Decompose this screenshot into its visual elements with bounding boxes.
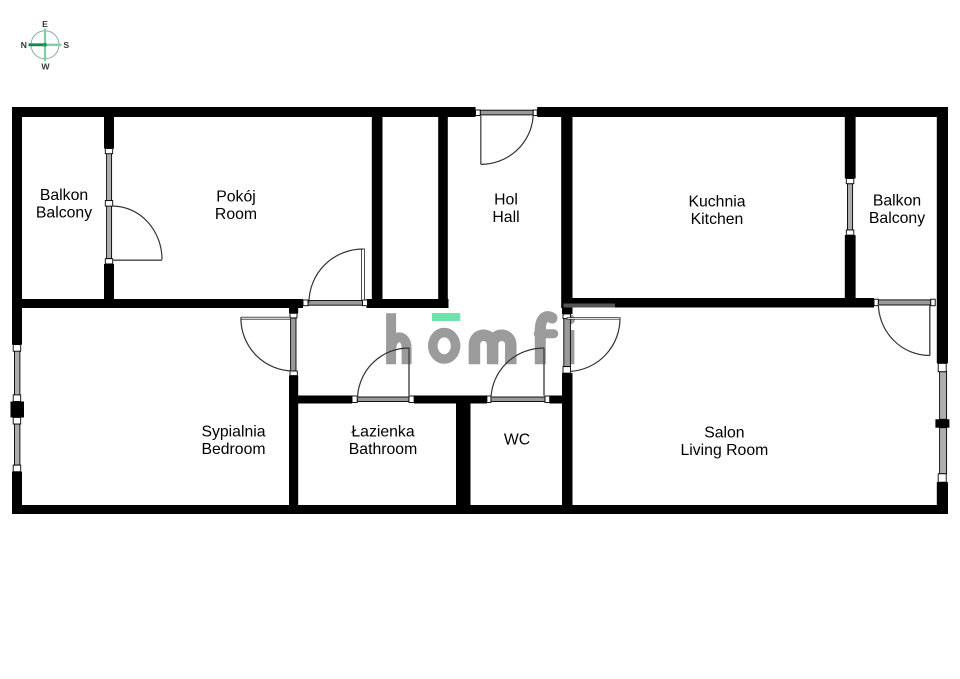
svg-text:Room: Room xyxy=(215,206,257,223)
svg-text:Bathroom: Bathroom xyxy=(349,441,418,458)
svg-text:Balkon: Balkon xyxy=(873,193,921,210)
svg-text:Balkon: Balkon xyxy=(40,187,88,204)
svg-text:S: S xyxy=(63,40,69,50)
svg-text:Salon: Salon xyxy=(704,425,744,442)
svg-text:Pokój: Pokój xyxy=(216,189,256,206)
svg-text:Living Room: Living Room xyxy=(680,442,768,459)
svg-text:Hall: Hall xyxy=(492,209,519,226)
svg-text:Sypialnia: Sypialnia xyxy=(201,424,265,441)
svg-text:Bedroom: Bedroom xyxy=(201,441,265,458)
svg-text:W: W xyxy=(41,62,50,72)
svg-text:E: E xyxy=(42,19,48,29)
svg-text:Kitchen: Kitchen xyxy=(691,211,744,228)
svg-text:WC: WC xyxy=(504,432,530,449)
svg-text:Kuchnia: Kuchnia xyxy=(688,194,745,211)
svg-text:Balcony: Balcony xyxy=(36,204,92,221)
svg-text:Hol: Hol xyxy=(494,192,518,209)
svg-text:Łazienka: Łazienka xyxy=(351,424,414,441)
svg-text:N: N xyxy=(21,40,27,50)
svg-text:Balcony: Balcony xyxy=(869,210,925,227)
